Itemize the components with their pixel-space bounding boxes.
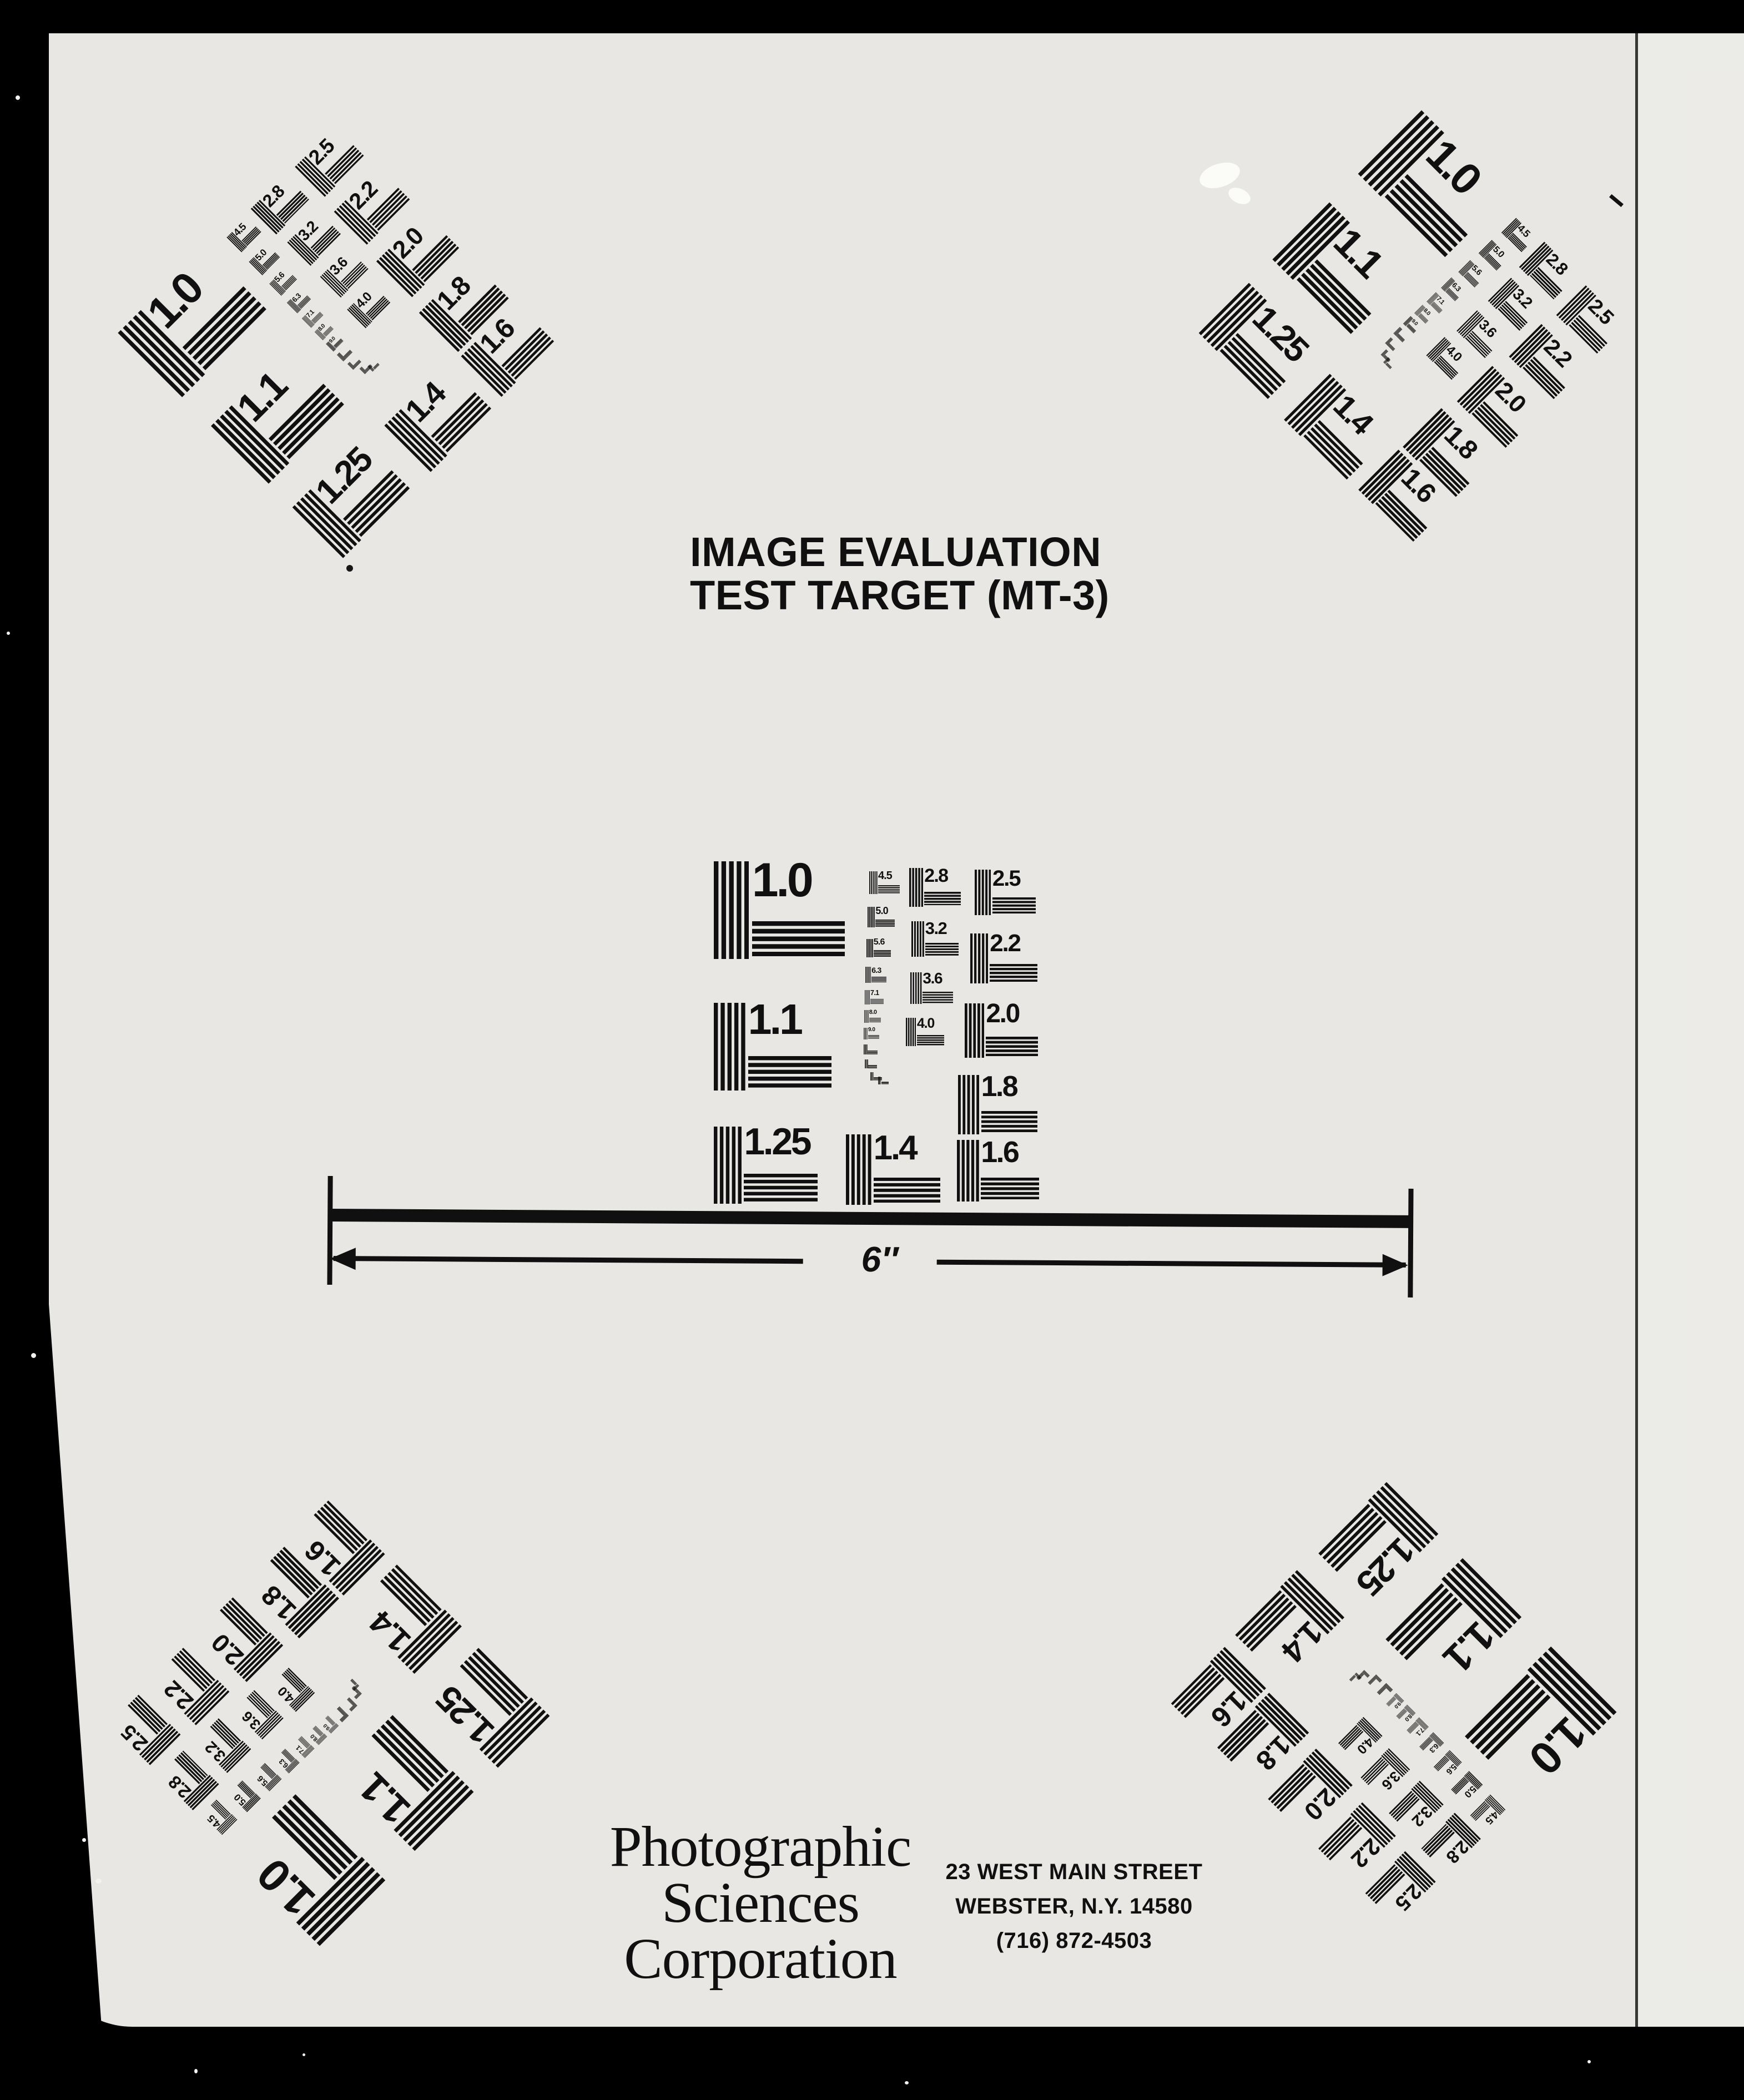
horizontal-bars: [347, 1698, 355, 1705]
vertical-bars: [865, 1059, 868, 1068]
vertical-bars: [909, 868, 923, 907]
vertical-bars: [869, 871, 878, 894]
vertical-bars: [911, 921, 924, 957]
target-value-label: 2.8: [924, 866, 947, 885]
horizontal-bars: [1377, 1686, 1386, 1695]
vertical-bars: [965, 1003, 984, 1058]
arrowhead-left-icon: [330, 1248, 356, 1270]
horizontal-bars: [344, 350, 352, 359]
dust-speck: [82, 1838, 86, 1842]
horizontal-bars: [990, 964, 1037, 982]
scale-bar-right-tick: [1408, 1189, 1413, 1298]
address-phone: (716) 872-4503: [944, 1924, 1204, 1958]
title-line-2: TEST TARGET (MT-3): [690, 574, 1110, 617]
dust-speck: [1587, 2060, 1591, 2063]
vertical-bars: [975, 870, 991, 915]
horizontal-bars: [874, 950, 891, 957]
scale-length-label: 6″: [827, 1238, 933, 1280]
company-line-3: Corporation: [555, 1931, 966, 1987]
target-value-label: 2.0: [986, 1001, 1019, 1027]
horizontal-bars: [1385, 362, 1392, 369]
vertical-bars: [878, 1077, 881, 1084]
vertical-bars: [846, 1134, 871, 1205]
horizontal-bars: [992, 897, 1036, 913]
horizontal-bars: [868, 1051, 878, 1054]
scale-arrow-line-left: [334, 1256, 803, 1264]
target-value-label: 1.8: [981, 1072, 1017, 1101]
vertical-bars: [958, 1075, 979, 1134]
ink-speck: [346, 565, 353, 572]
dust-speck: [95, 1879, 102, 1884]
scan-light-strip: [1639, 33, 1744, 2027]
target-value-label: 3.6: [923, 971, 942, 986]
vertical-bars: [714, 861, 749, 959]
dust-speck: [905, 2081, 909, 2084]
vertical-bars: [870, 1072, 874, 1081]
horizontal-bars: [881, 1082, 889, 1084]
scale-bar-rule: [330, 1209, 1410, 1228]
dust-speck: [16, 95, 20, 100]
horizontal-bars: [869, 1018, 881, 1022]
vertical-bars: [865, 967, 871, 983]
horizontal-bars: [917, 1035, 944, 1045]
horizontal-bars: [337, 1707, 346, 1715]
horizontal-bars: [752, 921, 845, 956]
vertical-bars: [866, 939, 873, 957]
horizontal-bars: [744, 1174, 818, 1202]
horizontal-bars: [925, 943, 959, 956]
target-value-label: 7.1: [870, 990, 879, 997]
arrowhead-right-icon: [1383, 1254, 1408, 1276]
vertical-bars: [957, 1140, 979, 1202]
horizontal-bars: [871, 977, 886, 982]
horizontal-bars: [923, 992, 953, 1003]
horizontal-bars: [868, 1035, 879, 1039]
horizontal-bars: [354, 360, 361, 367]
horizontal-bars: [986, 1037, 1038, 1056]
target-value-label: 6.3: [871, 966, 881, 974]
target-value-label: 3.2: [925, 920, 946, 937]
dust-speck: [7, 632, 10, 635]
vertical-bars: [970, 933, 988, 983]
horizontal-bars: [981, 1111, 1037, 1132]
dust-speck: [194, 2069, 198, 2073]
target-value-label: 1.1: [748, 998, 802, 1041]
horizontal-bars: [748, 1056, 831, 1088]
scanned-page: IMAGE EVALUATION TEST TARGET (MT-3) 6″ P…: [0, 0, 1744, 2100]
horizontal-bars: [870, 999, 884, 1004]
horizontal-bars: [1368, 1677, 1376, 1685]
company-line-2: Sciences: [555, 1875, 966, 1931]
target-value-label: 4.5: [878, 870, 892, 881]
horizontal-bars: [1349, 1675, 1357, 1682]
horizontal-bars: [981, 1178, 1039, 1200]
target-value-label: 2.5: [992, 867, 1020, 890]
vertical-bars: [910, 972, 922, 1004]
horizontal-bars: [350, 1679, 357, 1686]
target-value-label: 5.0: [875, 906, 888, 916]
resolution-target-center: 1.01.11.251.41.62.52.22.01.82.83.23.64.0…: [714, 861, 1058, 1205]
address-street: 23 WEST MAIN STREET: [944, 1855, 1204, 1889]
horizontal-bars: [1388, 344, 1395, 351]
target-value-label: 9.0: [868, 1027, 875, 1033]
target-value-label: 1.25: [744, 1123, 810, 1160]
vertical-bars: [865, 990, 870, 1004]
horizontal-bars: [1396, 334, 1405, 342]
horizontal-bars: [373, 363, 380, 370]
vertical-bars: [714, 1127, 742, 1204]
target-value-label: 4.0: [917, 1017, 934, 1031]
dust-speck: [31, 1353, 36, 1358]
target-value-label: 2.2: [990, 931, 1020, 956]
title-line-1: IMAGE EVALUATION: [690, 531, 1110, 574]
target-value-label: 1.4: [874, 1131, 916, 1165]
scale-arrow-line-right: [937, 1260, 1406, 1268]
page-title: IMAGE EVALUATION TEST TARGET (MT-3): [690, 531, 1110, 618]
dust-speck: [303, 2053, 305, 2056]
target-value-label: 1.6: [981, 1137, 1018, 1167]
vertical-bars: [868, 907, 875, 927]
horizontal-bars: [868, 1065, 877, 1068]
target-value-label: 1.0: [752, 856, 811, 904]
horizontal-bars: [874, 1178, 941, 1203]
target-value-label: 5.6: [874, 938, 885, 947]
company-name: Photographic Sciences Corporation: [555, 1819, 966, 1987]
vertical-bars: [906, 1018, 916, 1046]
vertical-bars: [864, 1010, 869, 1023]
vertical-bars: [714, 1003, 745, 1091]
company-line-1: Photographic: [555, 1819, 966, 1875]
horizontal-bars: [875, 920, 895, 927]
vertical-bars: [864, 1028, 868, 1039]
horizontal-bars: [924, 892, 961, 906]
target-value-label: 8.0: [869, 1009, 877, 1016]
vertical-bars: [864, 1044, 868, 1054]
address-city: WEBSTER, N.Y. 14580: [944, 1889, 1204, 1924]
company-address: 23 WEST MAIN STREET WEBSTER, N.Y. 14580 …: [944, 1855, 1204, 1958]
horizontal-bars: [878, 885, 900, 893]
